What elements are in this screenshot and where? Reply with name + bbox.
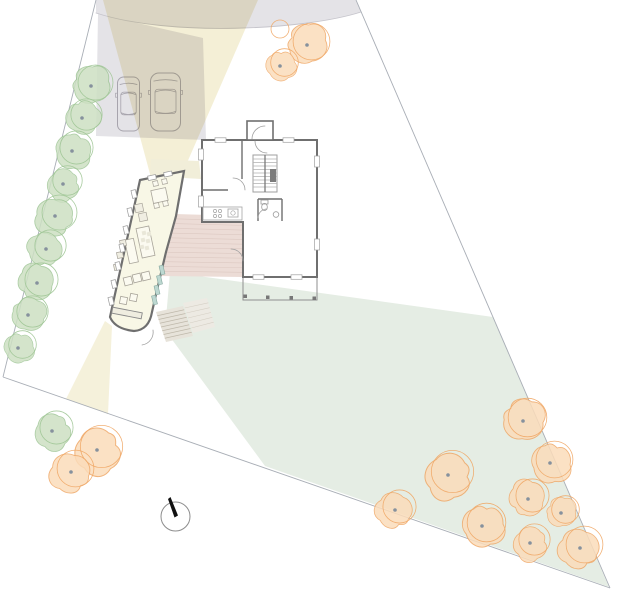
dining-chair xyxy=(163,201,169,207)
island-cabinet xyxy=(145,246,150,251)
porch-column xyxy=(290,296,294,300)
pantry-unit xyxy=(138,212,147,221)
window xyxy=(131,190,137,199)
sofa-section xyxy=(132,273,142,283)
dining-chair xyxy=(153,181,159,187)
window xyxy=(199,196,204,207)
tree-flowering xyxy=(288,23,330,63)
tree-deciduous xyxy=(53,131,94,172)
island-cabinet xyxy=(142,231,147,236)
dining-chair xyxy=(154,203,160,209)
tree-deciduous xyxy=(30,193,78,241)
window xyxy=(111,280,117,289)
island-cabinet xyxy=(146,239,151,244)
island-cabinet xyxy=(140,245,145,250)
pantry-unit xyxy=(134,203,143,212)
door-swing-wing-south xyxy=(142,330,153,345)
tree-deciduous xyxy=(12,258,60,306)
cabinet xyxy=(116,251,123,258)
site-plan-canvas xyxy=(0,0,627,600)
stair-newel xyxy=(270,169,276,182)
north-arrow xyxy=(161,497,190,531)
window xyxy=(215,138,226,143)
window xyxy=(291,275,302,280)
porch-column xyxy=(266,296,270,300)
window xyxy=(123,226,129,235)
lounge-chair xyxy=(129,293,137,301)
porch-column xyxy=(244,295,248,299)
window xyxy=(283,138,294,143)
window xyxy=(127,208,133,217)
view-cone-lower xyxy=(66,321,112,414)
entry-vestibule xyxy=(247,121,273,140)
island-cabinet xyxy=(141,238,146,243)
window xyxy=(199,149,204,160)
tree-deciduous xyxy=(28,407,78,457)
porch-column xyxy=(313,297,317,301)
dining-chair xyxy=(162,179,168,185)
window xyxy=(253,275,264,280)
island-cabinet xyxy=(147,232,152,237)
sofa-section xyxy=(123,276,133,286)
lounge-chair xyxy=(119,296,127,304)
sofa-section xyxy=(141,271,151,281)
window xyxy=(315,156,320,167)
site-plan xyxy=(0,0,627,600)
tree-flowering xyxy=(262,47,300,85)
window xyxy=(315,239,320,250)
